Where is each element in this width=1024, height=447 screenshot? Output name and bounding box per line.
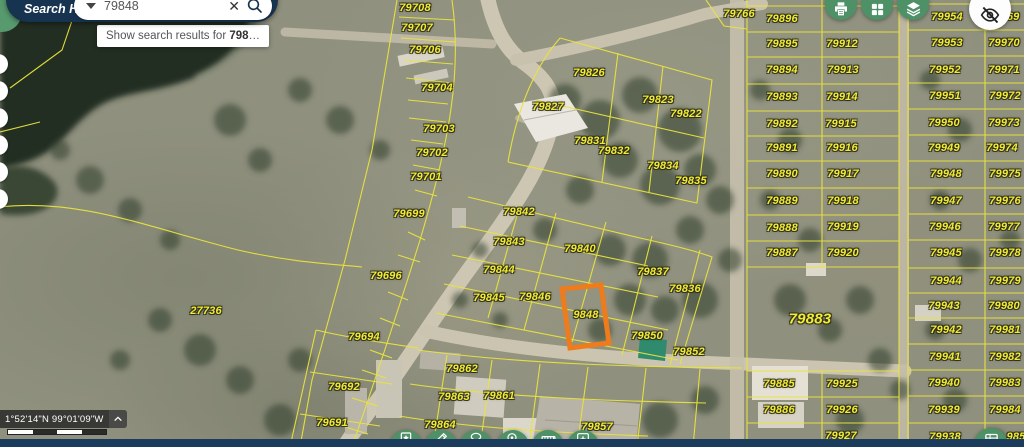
apps-grid-icon	[870, 2, 885, 17]
parcel-label: 79946	[929, 221, 961, 233]
chevron-up-icon	[113, 414, 123, 424]
parcel-label: 79920	[827, 247, 859, 259]
parcel-label: 79891	[766, 142, 798, 154]
parcel-label: 79952	[929, 64, 961, 76]
parcel-label: 79694	[348, 331, 380, 343]
parcel-label: 79835	[675, 175, 707, 187]
parcel-label: 79894	[766, 64, 798, 76]
map-viewport[interactable]: 7970879707797067970479703797027970179699…	[0, 0, 1024, 447]
parcel-label: 79977	[988, 221, 1020, 233]
parcel-label: 79890	[766, 168, 798, 180]
parcel-label: 79889	[766, 195, 798, 207]
parcel-label: 79836	[669, 283, 701, 295]
bottom-bar	[0, 439, 1024, 447]
suggestion-ellipsis: …	[249, 30, 261, 42]
parcel-label: 79980	[988, 300, 1020, 312]
suggestion-text: Show search results for	[106, 30, 229, 42]
parcel-label: 79834	[647, 160, 679, 172]
search-suggestion[interactable]: Show search results for 798…	[97, 25, 269, 47]
parcel-label: 79974	[986, 142, 1018, 154]
parcel-label: 79850	[631, 330, 663, 342]
parcel-label: 79832	[598, 145, 630, 157]
parcel-label: 79893	[766, 91, 798, 103]
parcel-label: 79945	[930, 247, 962, 259]
parcel-label: 79845	[473, 292, 505, 304]
search-input[interactable]	[104, 0, 222, 13]
parcel-label: 79766	[723, 8, 755, 20]
parcel-label: 79975	[989, 168, 1021, 180]
parcel-label: 79973	[988, 117, 1020, 129]
parcel-label: 79950	[928, 117, 960, 129]
parcel-label: 79942	[930, 324, 962, 336]
parcel-label: 79886	[763, 404, 795, 416]
parcel-label: 79691	[316, 417, 348, 429]
parcel-label: 79822	[670, 108, 702, 120]
parcel-label: 79970	[988, 37, 1020, 49]
parcel-label: 79925	[826, 378, 858, 390]
parcel-labels-layer: 7970879707797067970479703797027970179699…	[0, 0, 1024, 447]
parcel-label: 79842	[503, 206, 535, 218]
parcel-label: 79692	[328, 381, 360, 393]
parcel-label: 79706	[409, 44, 441, 56]
parcel-label: 79951	[929, 90, 961, 102]
parcel-label: 79947	[930, 195, 962, 207]
layers-icon	[905, 0, 922, 17]
parcel-label: 79701	[410, 171, 442, 183]
parcel-label: 79844	[483, 264, 515, 276]
parcel-label: 79840	[564, 243, 596, 255]
parcel-label: 79944	[930, 275, 962, 287]
parcel-label: 79983	[989, 377, 1021, 389]
parcel-label: 79846	[519, 291, 551, 303]
parcel-label: 79913	[827, 64, 859, 76]
parcel-label: 79892	[766, 118, 798, 130]
parcel-label: 79861	[483, 390, 515, 402]
parcel-label: 79703	[423, 123, 455, 135]
parcel-label: 79954	[931, 11, 963, 23]
suggestion-query: 798	[229, 30, 248, 42]
search-pill: ✕	[74, 0, 272, 20]
parcel-label: 79696	[370, 270, 402, 282]
parcel-label: 79971	[988, 64, 1020, 76]
parcel-label: 79918	[827, 195, 859, 207]
parcel-label: 79948	[930, 168, 962, 180]
parcel-label: 79926	[826, 404, 858, 416]
print-icon	[833, 1, 849, 17]
search-bar: Search Here: ✕	[6, 0, 278, 22]
parcel-label: 79863	[438, 391, 470, 403]
parcel-label: 79939	[928, 404, 960, 416]
parcel-label: 79984	[989, 404, 1021, 416]
parcel-label: 79704	[421, 82, 453, 94]
parcel-label: 79823	[642, 94, 674, 106]
parcel-label: 79699	[393, 208, 425, 220]
parcel-label: 27736	[190, 305, 222, 317]
parcel-label: 79949	[928, 142, 960, 154]
clear-search-icon[interactable]: ✕	[222, 0, 246, 13]
parcel-label: 79852	[673, 346, 705, 358]
parcel-label: 79862	[446, 363, 478, 375]
parcel-label: 79896	[766, 13, 798, 25]
parcel-label: 79916	[826, 142, 858, 154]
parcel-label: 79887	[766, 247, 798, 259]
parcel-label: 79888	[766, 222, 798, 234]
parcel-label: 79976	[989, 195, 1021, 207]
parcel-label: 79707	[401, 22, 433, 34]
parcel-label: 79837	[637, 266, 669, 278]
parcel-label: 9848	[573, 309, 598, 321]
parcel-label: 79912	[826, 38, 858, 50]
collapse-coordinates-button[interactable]	[109, 410, 127, 428]
visibility-off-icon	[980, 5, 1000, 25]
parcel-label: 79843	[493, 236, 525, 248]
search-icon[interactable]	[246, 0, 264, 15]
parcel-label: 79972	[989, 90, 1021, 102]
scale-bar	[7, 429, 107, 435]
chevron-down-icon[interactable]	[86, 3, 96, 9]
parcel-label: 79953	[931, 37, 963, 49]
parcel-label: 79826	[573, 67, 605, 79]
parcel-label: 79940	[928, 377, 960, 389]
parcel-label: 79914	[826, 91, 858, 103]
parcel-label: 79883	[789, 311, 832, 328]
coordinates-chip: 1°52'14"N 99°01'09"W	[0, 410, 127, 428]
parcel-label: 79708	[399, 2, 431, 14]
parcel-label: 79941	[929, 351, 961, 363]
parcel-label: 79915	[825, 118, 857, 130]
parcel-label: 79982	[989, 351, 1021, 363]
coordinates-text: 1°52'14"N 99°01'09"W	[0, 414, 109, 425]
parcel-label: 79895	[766, 38, 798, 50]
parcel-label: 79981	[989, 324, 1021, 336]
parcel-label: 79978	[989, 247, 1021, 259]
parcel-label: 79885	[763, 378, 795, 390]
parcel-label: 79979	[989, 275, 1021, 287]
parcel-label: 79827	[532, 101, 564, 113]
parcel-label: 79943	[928, 300, 960, 312]
parcel-label: 79917	[827, 168, 859, 180]
parcel-label: 79702	[416, 147, 448, 159]
parcel-label: 79919	[827, 221, 859, 233]
